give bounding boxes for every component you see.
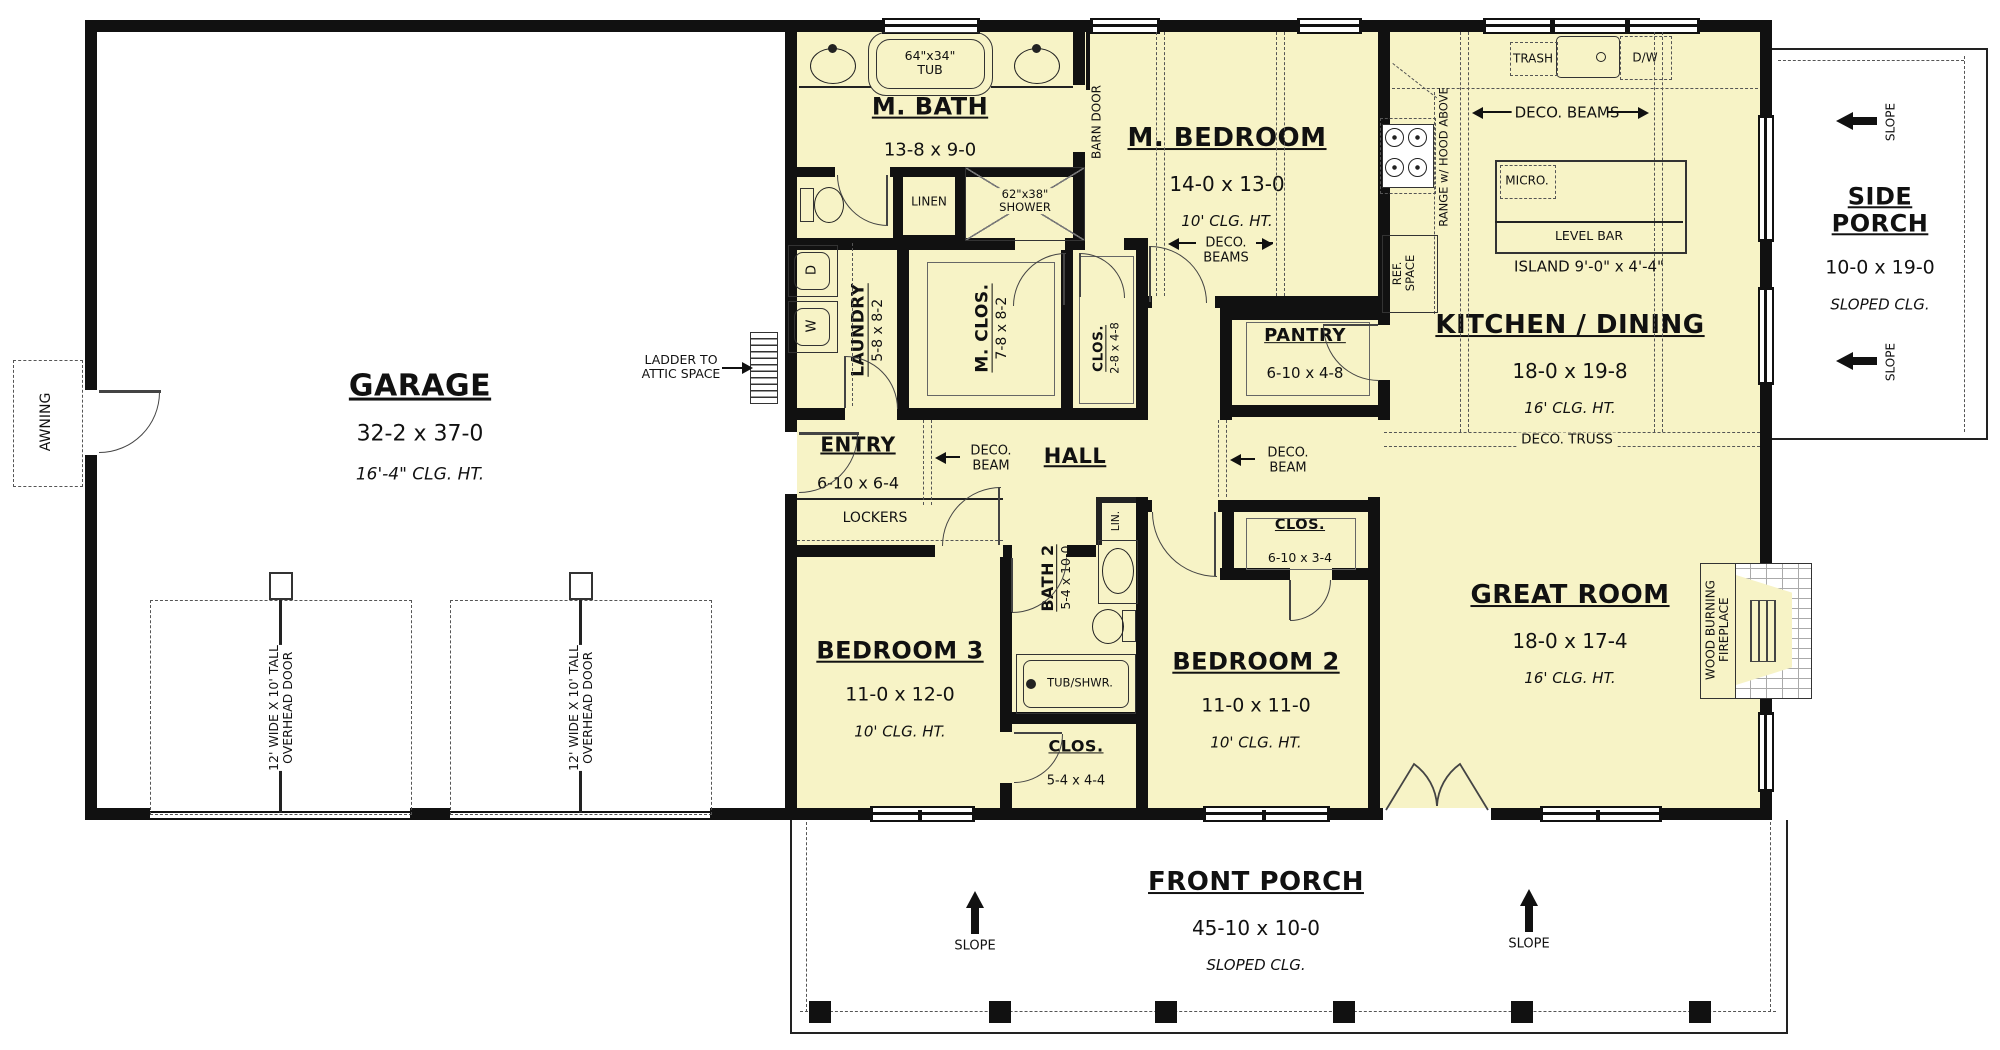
room-dims: 11-0 x 12-0 (816, 684, 983, 705)
sink (1102, 548, 1134, 594)
porch-post (1333, 1001, 1355, 1023)
deco-beams-label: DECO. BEAMS (1512, 105, 1623, 122)
wall (975, 808, 1203, 820)
room-ceiling: SLOPED CLG. (1148, 957, 1364, 974)
wall (85, 455, 97, 820)
lin-closet-wall (1096, 497, 1102, 545)
window (1483, 18, 1700, 34)
toilet-tank (1122, 610, 1136, 642)
wall (1662, 808, 1772, 820)
trash-label: TRASH (1513, 52, 1553, 65)
porch-post (989, 1001, 1011, 1023)
slope-arrow (1836, 112, 1853, 130)
door-leaf (998, 487, 1000, 545)
deco-beam-line (1218, 420, 1227, 497)
wall (897, 408, 1148, 420)
wall (785, 494, 797, 820)
arrow-line (946, 456, 960, 458)
lockers-label: LOCKERS (843, 511, 908, 527)
deco-beam-line (1460, 32, 1469, 432)
tub-label: 64"x34" TUB (905, 49, 956, 77)
french-doors (1383, 756, 1491, 812)
deco-beam-line (923, 420, 932, 505)
burner (1385, 128, 1404, 147)
microwave-label: MICRO. (1505, 174, 1548, 187)
window-mullion (1262, 810, 1266, 820)
front-porch-edge (790, 1032, 1788, 1034)
barn-door-panel (1086, 24, 1090, 90)
porch-post (1511, 1001, 1533, 1023)
door-leaf (1063, 253, 1065, 305)
arrow-left (1168, 238, 1179, 250)
barn-door-label: BARN DOOR (1090, 85, 1103, 159)
arrow-line (1241, 458, 1255, 460)
door-leaf (1149, 246, 1151, 302)
porch-post (1155, 1001, 1177, 1023)
window-mullion (1596, 810, 1600, 820)
wall (410, 808, 450, 820)
wall (955, 167, 965, 243)
deco-beam-label: DECO. BEAM (1267, 446, 1308, 475)
ladder-arrow (742, 362, 753, 374)
window (1090, 18, 1160, 34)
arrow-line (1607, 111, 1639, 113)
burner (1408, 128, 1427, 147)
door-leaf (1011, 558, 1013, 612)
room-dims: 11-0 x 11-0 (1172, 695, 1339, 716)
dryer-label: D (806, 265, 821, 275)
window (870, 806, 975, 822)
slope-label: SLOPE (954, 940, 995, 955)
toilet-tank (800, 188, 814, 222)
wall (797, 167, 835, 177)
window-mullion (1625, 20, 1630, 32)
room-dims: 18-0 x 17-4 (1470, 630, 1669, 652)
sink (810, 48, 856, 84)
arrow-left (1230, 454, 1241, 466)
room-dims: 13-8 x 9-0 (872, 140, 988, 160)
slope-arrow-shaft (1852, 357, 1877, 365)
island-label: ISLAND 9'-0" x 4'-4" (1514, 259, 1664, 276)
burner (1385, 158, 1404, 177)
front-porch-dashed (800, 1011, 1776, 1012)
room-dims: 45-10 x 10-0 (1148, 917, 1364, 939)
room-name: GREAT ROOM (1470, 581, 1669, 610)
burner (1408, 158, 1427, 177)
room-name: BEDROOM 2 (1172, 649, 1339, 676)
window (1297, 18, 1362, 34)
room-name: KITCHEN / DINING (1435, 311, 1704, 340)
great-room-label: GREAT ROOM 18-0 x 17-4 16' CLG. HT. (1470, 563, 1669, 705)
slope-arrow-shaft (1525, 904, 1533, 932)
room-ceiling: 16' CLG. HT. (1435, 400, 1704, 417)
bedroom2-label: BEDROOM 2 11-0 x 11-0 10' CLG. HT. (1172, 631, 1339, 770)
door-leaf (99, 390, 161, 393)
room-name: M. BATH (872, 94, 988, 121)
vanity-counter (991, 86, 1073, 88)
wall (1491, 808, 1540, 820)
wall (1215, 296, 1378, 308)
washer-label: W (806, 320, 821, 333)
window-mullion (1550, 20, 1555, 32)
room-name: FRONT PORCH (1148, 868, 1364, 897)
slope-label: SLOPE (1508, 938, 1549, 953)
wall (1003, 545, 1012, 557)
kitchen-sink (1556, 36, 1620, 78)
front-porch-label: FRONT PORCH 45-10 x 10-0 SLOPED CLG. (1148, 850, 1364, 992)
deco-truss-label: DECO. TRUSS (1517, 432, 1617, 447)
front-porch-edge (790, 820, 792, 1034)
door-leaf (1289, 580, 1291, 620)
porch-post (809, 1001, 831, 1023)
slope-arrow-shaft (1852, 117, 1877, 125)
door-leaf (799, 432, 859, 435)
arrow-line (1179, 242, 1196, 244)
window (1758, 115, 1774, 242)
door-leaf (1079, 253, 1081, 297)
ref-label: REF. SPACE (1391, 255, 1417, 291)
garage-label: GARAGE 32-2 x 37-0 16'-4" CLG. HT. (349, 352, 491, 503)
bedroom3-label: BEDROOM 3 11-0 x 12-0 10' CLG. HT. (816, 620, 983, 759)
linen-label: LINEN (911, 195, 947, 208)
wall (897, 250, 909, 408)
side-porch-edge (1772, 438, 1988, 440)
room-dims: 32-2 x 37-0 (349, 423, 491, 448)
overhead-door-motor (569, 572, 593, 600)
room-ceiling: SLOPED CLG. (1820, 296, 1940, 313)
side-porch-dashed (1964, 56, 1965, 432)
arrow-left (935, 452, 946, 464)
window-mullion (918, 810, 922, 820)
room-ceiling: 16' CLG. HT. (1470, 670, 1669, 687)
side-porch-dashed (1778, 60, 1964, 61)
hall-label: HALL (1044, 445, 1107, 469)
porch-post (1689, 1001, 1711, 1023)
window (1758, 287, 1774, 385)
wall (1136, 500, 1152, 512)
wall (1220, 308, 1232, 420)
deco-beam-label: DECO. BEAM (970, 444, 1011, 473)
door-leaf (1323, 324, 1378, 326)
sink-faucet (1032, 44, 1041, 53)
wall (785, 20, 797, 432)
slope-label: SLOPE (1884, 103, 1897, 141)
wall (1220, 405, 1378, 417)
sink-faucet (1596, 52, 1606, 62)
arrow-line (1483, 111, 1515, 113)
sink-faucet (828, 44, 837, 53)
fireplace-grate (1750, 600, 1776, 662)
side-porch-label: SIDE PORCH 10-0 x 19-0 SLOPED CLG. (1820, 165, 1940, 330)
window (1758, 712, 1774, 792)
ladder-label: LADDER TO ATTIC SPACE (642, 353, 721, 381)
room-ceiling: 10' CLG. HT. (816, 724, 983, 741)
arrow-right (1638, 107, 1649, 119)
door-leaf (886, 175, 888, 225)
deco-beam-line (1276, 32, 1285, 296)
room-name: SIDE PORCH (1820, 183, 1940, 237)
toilet-bowl (1092, 609, 1124, 644)
window (1540, 806, 1662, 822)
arrow-right (1262, 238, 1273, 250)
level-bar-label: LEVEL BAR (1555, 229, 1623, 243)
slope-arrow-shaft (971, 906, 979, 934)
wall (85, 20, 97, 390)
deco-beams-label: DECO. BEAMS (1203, 236, 1249, 265)
door-arc (99, 392, 160, 453)
wall (710, 808, 785, 820)
wall (1368, 497, 1380, 815)
wall (1378, 380, 1390, 420)
kitchen-label: KITCHEN / DINING 18-0 x 19-8 16' CLG. HT… (1435, 293, 1704, 435)
room-name: GARAGE (349, 369, 491, 403)
closet-shelf (1246, 518, 1356, 570)
attic-ladder (750, 332, 778, 404)
room-name: BEDROOM 3 (816, 638, 983, 665)
front-porch-edge (1786, 820, 1788, 1034)
awning-label: AWNING (39, 393, 55, 452)
lin-closet-wall (1096, 497, 1136, 503)
tub-faucet (1026, 679, 1036, 689)
wall (1136, 250, 1148, 420)
level-bar-line (1495, 221, 1683, 223)
wall (1073, 20, 1085, 85)
arrow-left (1472, 107, 1483, 119)
door-leaf (844, 356, 846, 408)
door-leaf (1014, 732, 1062, 734)
side-porch-edge (1986, 48, 1988, 440)
room-dims: 10-0 x 19-0 (1820, 257, 1940, 278)
side-porch-edge (1772, 48, 1988, 50)
door-leaf (1214, 512, 1216, 576)
overhead-door-label: 12' WIDE X 10' TALL OVERHEAD DOOR (567, 645, 595, 771)
wall (1000, 783, 1012, 808)
tub-shower-label: TUB/SHWR. (1047, 677, 1113, 690)
shower-label: 62"x38" SHOWER (997, 188, 1053, 214)
room-ceiling: 10' CLG. HT. (1172, 735, 1339, 752)
room-dims: 18-0 x 19-8 (1435, 360, 1704, 382)
room-dims: 5-4 x 4-4 (1047, 774, 1105, 789)
ladder-arrow-line (722, 367, 744, 369)
front-porch-dashed (1770, 822, 1771, 1012)
wall (797, 545, 935, 557)
sink (1014, 48, 1060, 84)
wall (785, 808, 870, 820)
slope-label: SLOPE (1884, 343, 1897, 381)
front-porch-dashed (806, 822, 807, 1012)
vanity-counter (799, 86, 871, 88)
overhead-door-motor (269, 572, 293, 600)
range-label: RANGE w/ HOOD ABOVE (1438, 87, 1451, 227)
overhead-door-label: 12' WIDE X 10' TALL OVERHEAD DOOR (267, 645, 295, 771)
lin-label: LIN. (1111, 511, 1123, 531)
floor-plan: GARAGE 32-2 x 37-0 16'-4" CLG. HT. AWNIN… (0, 0, 2000, 1050)
room-ceiling: 16'-4" CLG. HT. (349, 466, 491, 485)
slope-arrow (1836, 352, 1853, 370)
fireplace-label: WOOD BURNING FIREPLACE (1705, 580, 1732, 680)
wall (893, 167, 903, 243)
window (1203, 806, 1330, 822)
